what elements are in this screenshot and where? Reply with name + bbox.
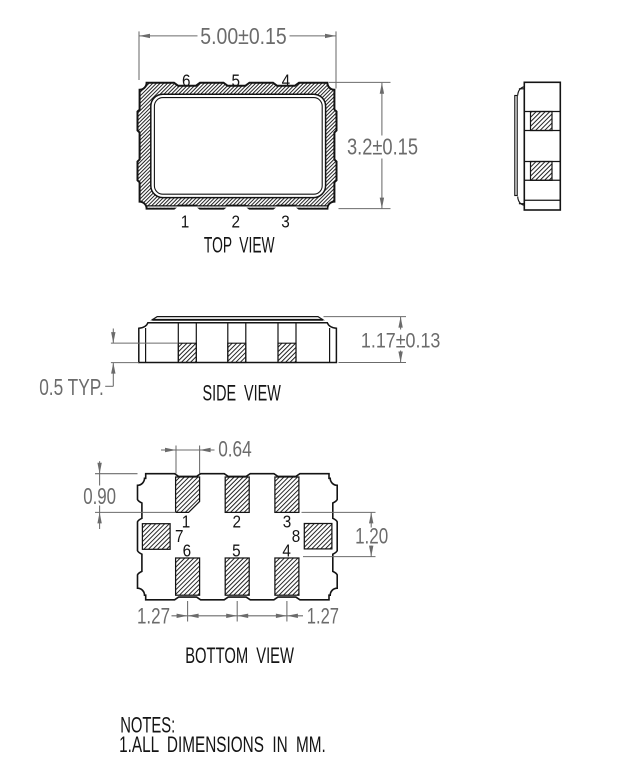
- svg-text:TOP VIEW: TOP VIEW: [204, 233, 275, 258]
- svg-text:0.5 TYP.: 0.5 TYP.: [39, 374, 104, 400]
- svg-text:6: 6: [182, 71, 191, 91]
- svg-text:0.64: 0.64: [218, 437, 252, 462]
- svg-text:1.20: 1.20: [355, 523, 388, 548]
- svg-text:2: 2: [232, 512, 241, 532]
- svg-text:4: 4: [282, 71, 291, 91]
- svg-text:8: 8: [292, 526, 301, 546]
- svg-text:1.27: 1.27: [307, 604, 339, 629]
- svg-text:BOTTOM VIEW: BOTTOM VIEW: [185, 643, 294, 668]
- svg-text:5.00±0.15: 5.00±0.15: [200, 23, 286, 49]
- svg-text:5: 5: [231, 71, 240, 91]
- svg-text:1.ALL DIMENSIONS IN MM.: 1.ALL DIMENSIONS IN MM.: [119, 732, 326, 757]
- svg-text:1.27: 1.27: [137, 604, 170, 629]
- svg-text:1: 1: [181, 212, 190, 232]
- svg-text:0.90: 0.90: [83, 483, 116, 509]
- svg-text:3: 3: [283, 512, 292, 532]
- svg-text:4: 4: [282, 541, 291, 561]
- svg-text:2: 2: [231, 212, 240, 232]
- svg-text:SIDE VIEW: SIDE VIEW: [203, 380, 282, 405]
- svg-text:5: 5: [232, 541, 241, 561]
- svg-text:3: 3: [281, 212, 290, 232]
- svg-text:3.2±0.15: 3.2±0.15: [347, 133, 418, 159]
- svg-text:6: 6: [183, 541, 192, 561]
- svg-text:1.17±0.13: 1.17±0.13: [361, 329, 441, 353]
